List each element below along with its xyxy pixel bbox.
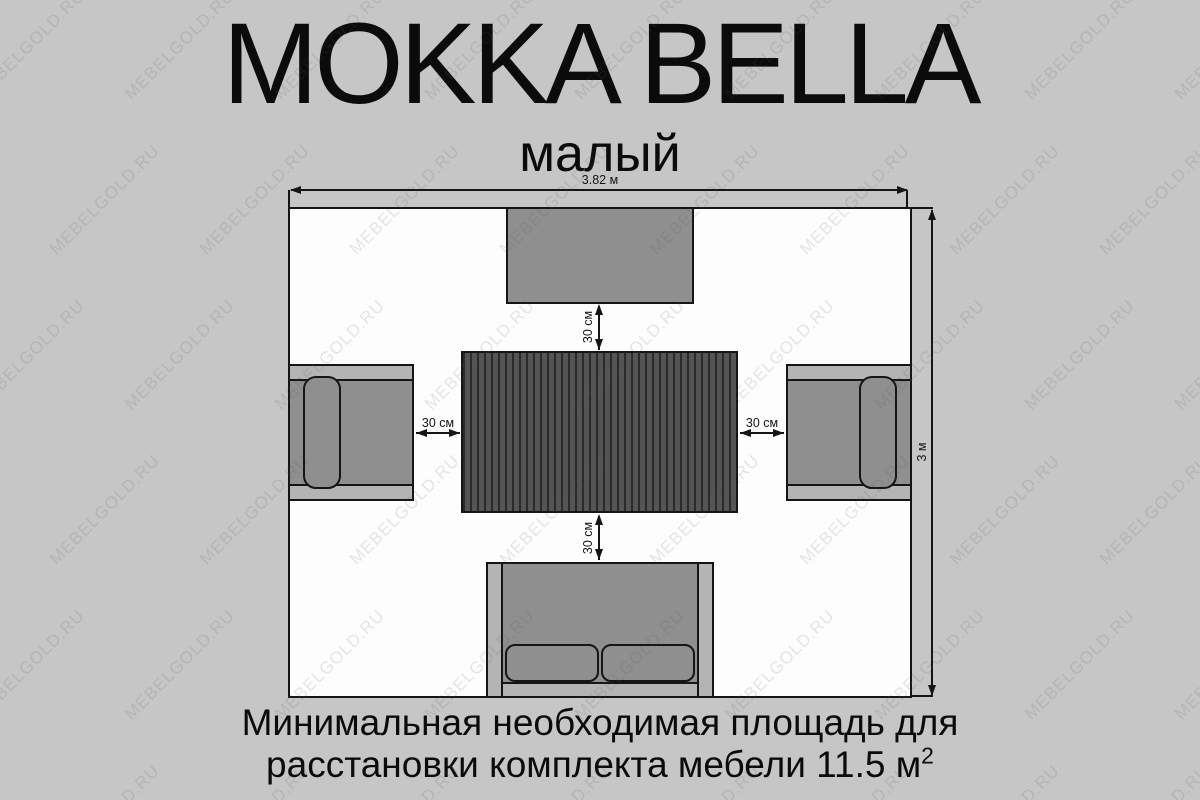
gap-left-label: 30 см: [422, 416, 454, 430]
dim-tick: [906, 190, 908, 207]
sofa-cushion: [505, 644, 599, 682]
dim-width-line: [291, 189, 907, 191]
arrow-left-icon: [416, 429, 427, 437]
sofa-backrest: [501, 682, 699, 698]
furniture-layout-diagram: MOKKA BELLA малый 3.82 м 3 м: [0, 0, 1200, 800]
gap-bottom-label: 30 см: [581, 522, 595, 554]
watermark-text: MEBELGOLD.RU: [0, 296, 89, 414]
dim-height-line: [931, 210, 933, 695]
arrow-up-icon: [595, 514, 603, 525]
arrow-left-icon: [290, 186, 301, 194]
arrow-left-icon: [740, 429, 751, 437]
sofa-bottom: [486, 562, 714, 698]
caption-line2-text: расстановки комплекта мебели 11.5 м: [266, 744, 921, 785]
page-title: MOKKA BELLA: [0, 4, 1200, 125]
watermark-text: MEBELGOLD.RU: [1021, 296, 1139, 414]
watermark-text: MEBELGOLD.RU: [1171, 296, 1200, 414]
armchair-right: [786, 364, 912, 501]
room-height-label: 3 м: [915, 442, 929, 461]
room-width-label: 3.82 м: [582, 173, 618, 187]
watermark-text: MEBELGOLD.RU: [1096, 451, 1200, 569]
dim-tick: [288, 190, 290, 207]
armchair-cushion: [303, 376, 341, 489]
gap-right-label: 30 см: [746, 416, 778, 430]
armchair-left: [288, 364, 414, 501]
watermark-text: MEBELGOLD.RU: [121, 296, 239, 414]
dining-table: [461, 351, 738, 513]
arrow-up-icon: [928, 209, 936, 220]
dim-tick: [912, 207, 933, 209]
armchair-cushion: [859, 376, 897, 489]
watermark-text: MEBELGOLD.RU: [946, 451, 1064, 569]
sofa-armrest: [486, 562, 503, 698]
arrow-right-icon: [773, 429, 784, 437]
armchair-armrest: [786, 484, 912, 501]
bench-top: [506, 207, 694, 304]
caption-superscript: 2: [921, 743, 934, 769]
sofa-cushion: [601, 644, 695, 682]
arrow-up-icon: [595, 304, 603, 315]
caption-line2: расстановки комплекта мебели 11.5 м2: [0, 744, 1200, 786]
caption: Минимальная необходимая площадь для расс…: [0, 702, 1200, 786]
arrow-right-icon: [449, 429, 460, 437]
arrow-down-icon: [595, 339, 603, 350]
armchair-armrest: [288, 484, 414, 501]
gap-top-label: 30 см: [581, 311, 595, 343]
dim-tick: [912, 695, 933, 697]
watermark-text: MEBELGOLD.RU: [46, 451, 164, 569]
sofa-armrest: [697, 562, 714, 698]
arrow-down-icon: [595, 549, 603, 560]
caption-line1: Минимальная необходимая площадь для: [0, 702, 1200, 744]
